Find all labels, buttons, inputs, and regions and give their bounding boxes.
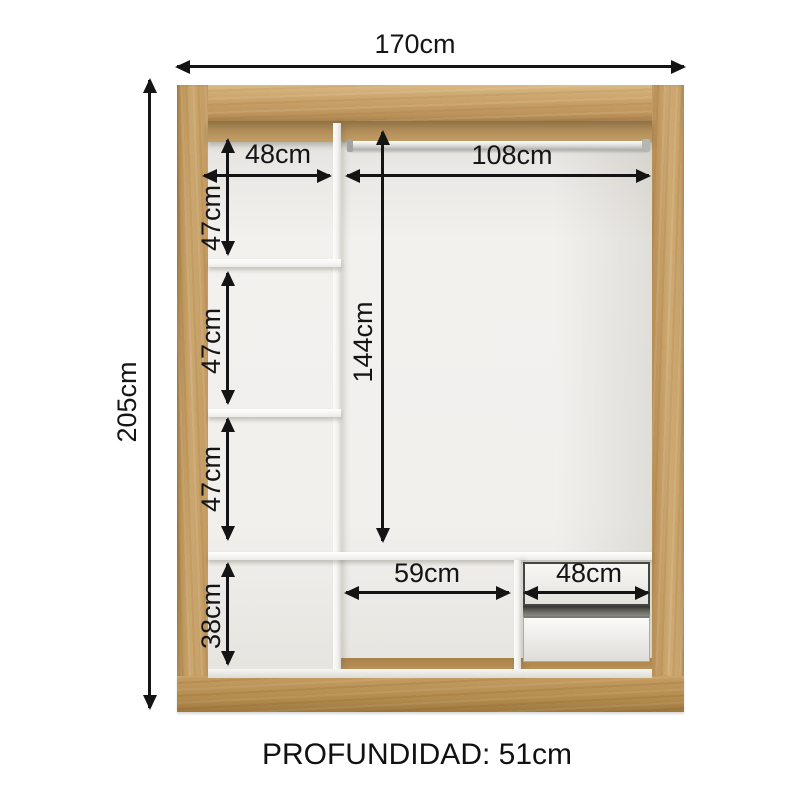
center-divider-panel — [333, 123, 341, 676]
left-shelf-2 — [208, 409, 341, 417]
dim-label-left-sec1: 47cm — [197, 185, 227, 251]
wardrobe-top-panel — [177, 85, 684, 121]
dim-label-bottom-open-width: 59cm — [394, 559, 460, 589]
drawer-open-gap — [523, 606, 650, 616]
drawer-lower — [523, 616, 650, 662]
dim-label-rod-section-height: 144cm — [349, 301, 379, 382]
wardrobe-dimension-diagram: 170cm 205cm 48cm 108cm 47cm 47cm 47cm 38… — [0, 0, 800, 800]
depth-label: PROFUNDIDAD: 51cm — [262, 738, 572, 772]
wardrobe-base-panel — [177, 676, 684, 712]
dim-arrow-left-col-width — [204, 174, 330, 177]
wardrobe-right-panel — [652, 85, 684, 677]
bottom-kick-strip — [208, 669, 652, 678]
dim-label-drawer-width: 48cm — [556, 559, 622, 589]
dim-arrow-total-height — [148, 80, 151, 708]
drawer-divider-panel — [514, 560, 521, 676]
dim-arrow-drawer-width — [525, 591, 648, 594]
dim-label-left-sec2: 47cm — [197, 308, 227, 374]
dim-label-total-width: 170cm — [374, 30, 455, 60]
dim-label-total-height: 205cm — [113, 361, 143, 442]
dim-arrow-rod-section-height — [381, 132, 384, 541]
dim-label-left-sec3: 47cm — [197, 446, 227, 512]
dim-label-rod-section-width: 108cm — [471, 141, 552, 171]
dim-arrow-rod-section-width — [347, 174, 649, 177]
left-shelf-1 — [208, 259, 341, 267]
dim-label-left-col-width: 48cm — [245, 140, 311, 170]
dim-arrow-total-width — [177, 65, 684, 68]
dim-arrow-bottom-open-width — [346, 591, 509, 594]
dim-label-left-sec4: 38cm — [197, 583, 227, 649]
